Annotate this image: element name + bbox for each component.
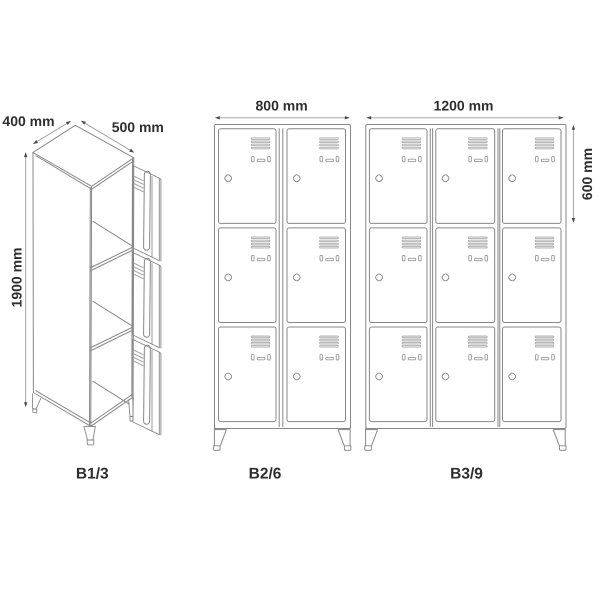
svg-text:800 mm: 800 mm bbox=[256, 98, 308, 114]
svg-text:1900 mm: 1900 mm bbox=[9, 248, 25, 308]
svg-text:B2/6: B2/6 bbox=[249, 466, 282, 483]
svg-text:600 mm: 600 mm bbox=[579, 148, 595, 200]
svg-text:400 mm: 400 mm bbox=[2, 113, 54, 129]
svg-text:1200 mm: 1200 mm bbox=[434, 98, 494, 114]
svg-text:500 mm: 500 mm bbox=[112, 119, 164, 135]
svg-text:B3/9: B3/9 bbox=[450, 466, 483, 483]
svg-text:B1/3: B1/3 bbox=[76, 466, 109, 483]
